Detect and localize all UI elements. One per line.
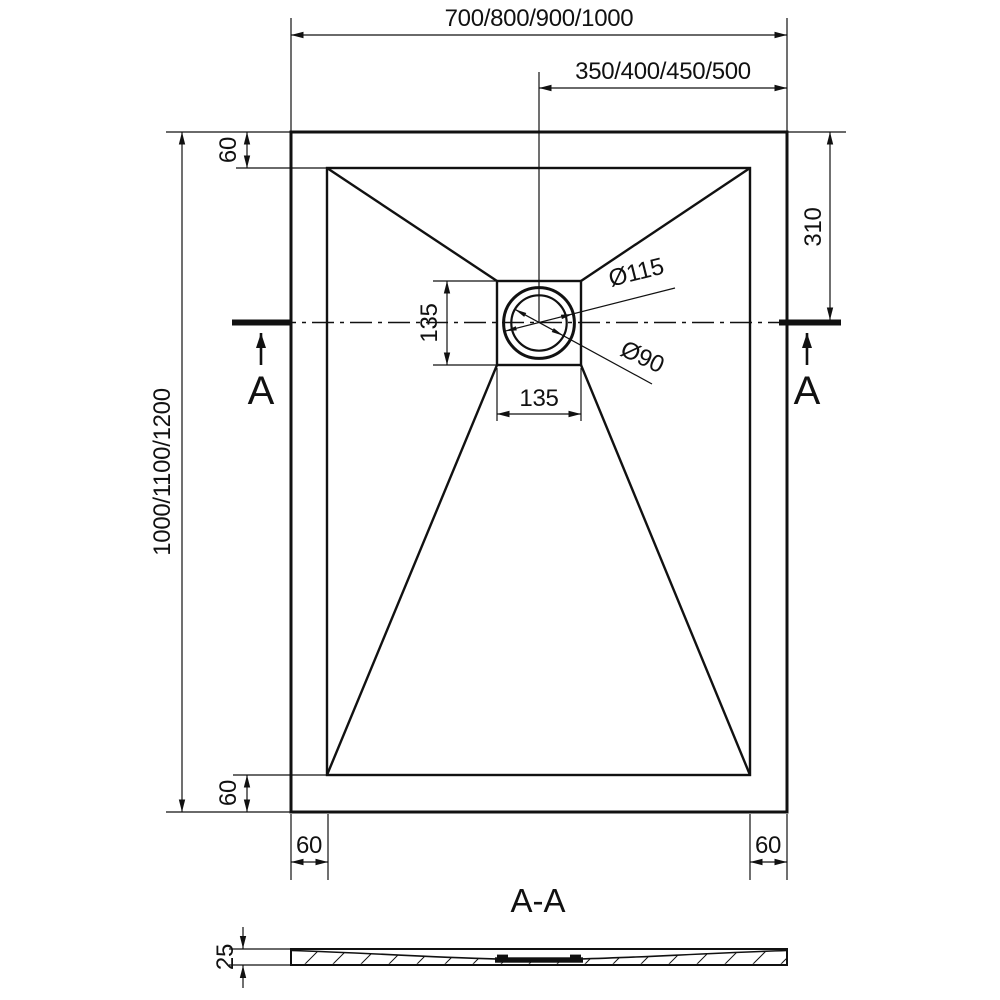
leader-flange-diameter	[505, 288, 675, 331]
dim-label-drain-square-width: 135	[519, 385, 558, 412]
section-dimension: 25	[212, 927, 290, 988]
plan-view: A A 700/800/900/1000 350/400/4	[149, 5, 846, 880]
slope-diagonal-top-left	[327, 168, 497, 281]
dim-label-drain-from-top: 310	[800, 207, 827, 246]
technical-drawing-page: A A 700/800/900/1000 350/400/4	[0, 0, 1000, 1000]
section-body	[274, 945, 800, 967]
dim-label-drain-diameter: Ø90	[616, 336, 668, 379]
section-view: A-A 25	[212, 882, 800, 988]
section-title: A-A	[510, 882, 565, 919]
section-drain-fitting	[495, 955, 583, 963]
slope-diagonal-bottom-right	[581, 365, 750, 775]
leader-arrow	[552, 328, 564, 336]
dimension-lines: 700/800/900/1000 350/400/450/500 1000/11…	[149, 5, 830, 862]
section-mark-label-left: A	[248, 369, 275, 413]
dim-label-drain-offset: 350/400/450/500	[575, 58, 751, 85]
section-mark-label-right: A	[794, 369, 821, 413]
dim-label-thickness: 25	[212, 944, 239, 970]
slope-diagonal-bottom-left	[327, 365, 497, 775]
dim-label-drain-square-height: 135	[416, 303, 443, 342]
extension-lines	[166, 18, 846, 880]
drain-fitting-body	[495, 957, 583, 962]
dim-label-border-bottom-left: 60	[296, 832, 322, 859]
dim-label-overall-width: 700/800/900/1000	[445, 5, 634, 32]
slope-diagonal-top-right	[581, 168, 750, 281]
shower-tray-drawing: A A 700/800/900/1000 350/400/4	[0, 0, 1000, 1000]
dim-label-overall-length: 1000/1100/1200	[149, 388, 176, 556]
dim-label-border-bottom: 60	[215, 780, 242, 806]
drain-fitting-lip-left	[497, 955, 508, 959]
leader-arrow	[515, 309, 527, 317]
dim-label-border-top: 60	[215, 137, 242, 163]
dim-label-border-bottom-right: 60	[755, 832, 781, 859]
drain-fitting-lip-right	[570, 955, 581, 959]
